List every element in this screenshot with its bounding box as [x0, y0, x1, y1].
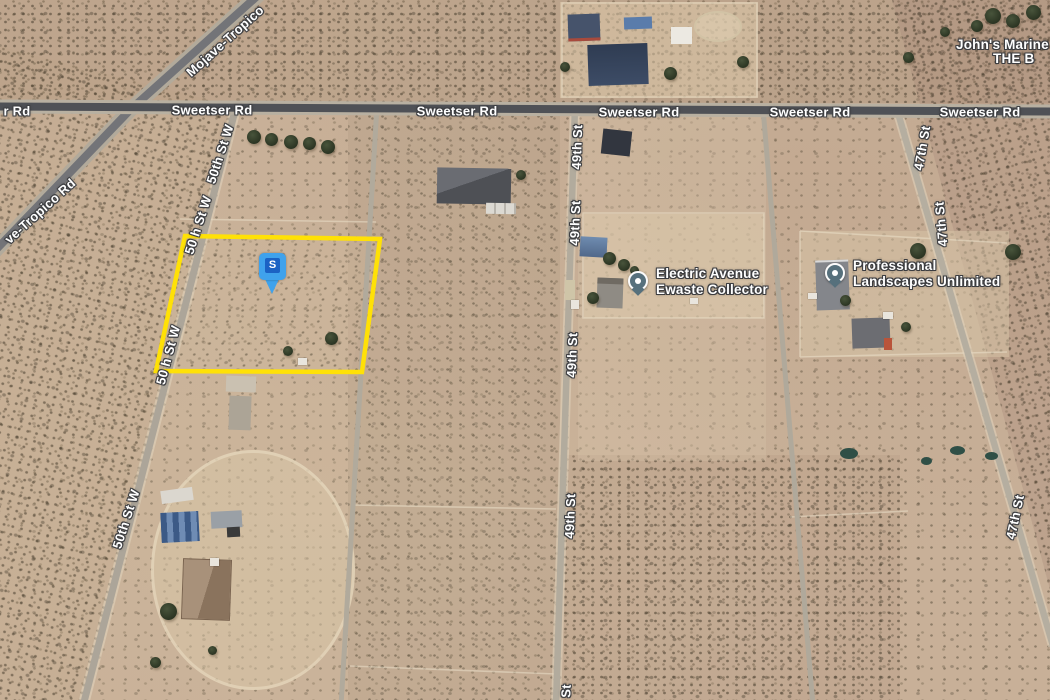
road-label-49th-2: 49th St: [567, 200, 584, 246]
tree: [325, 332, 338, 345]
building: [227, 527, 241, 538]
poi-label-ewaste-line2[interactable]: Ewaste Collector: [656, 282, 768, 297]
tree: [664, 67, 677, 80]
tree: [321, 140, 335, 154]
tree: [560, 62, 570, 72]
vehicle: [298, 358, 307, 365]
tree: [587, 292, 599, 304]
tree: [284, 135, 298, 149]
building: [226, 375, 257, 392]
tree: [603, 252, 616, 265]
road-label-sweetser-2: Sweetser Rd: [417, 104, 498, 119]
tree: [971, 20, 983, 32]
roads-layer: [0, 0, 1050, 700]
tree: [160, 603, 177, 620]
road-47th-st: [896, 106, 1050, 646]
road-label-49th-4: 49th St: [562, 493, 579, 539]
vehicle: [808, 293, 817, 299]
pond: [921, 457, 932, 465]
tree: [150, 657, 161, 668]
building: [437, 167, 512, 204]
building: [884, 338, 892, 350]
road-label-49th-1: 49th St: [569, 124, 586, 170]
pond: [840, 448, 858, 459]
tree: [903, 52, 914, 63]
building: [568, 13, 601, 41]
building: [160, 511, 200, 543]
tree: [985, 8, 1001, 24]
building: [671, 27, 692, 44]
tree: [901, 322, 911, 332]
marker-letter: S: [265, 258, 280, 273]
marker-tail: [265, 279, 279, 294]
road-unnamed-2: [763, 108, 813, 700]
tree: [1006, 14, 1020, 28]
road-label-sweetser-cut: r Rd: [4, 104, 31, 119]
road-label-sweetser-5: Sweetser Rd: [940, 105, 1021, 120]
tree: [1005, 244, 1021, 260]
poi-label-marine-line2[interactable]: THE B: [993, 51, 1035, 66]
tree: [1026, 5, 1041, 20]
building: [228, 396, 251, 431]
vehicle: [210, 558, 219, 566]
vehicle: [690, 298, 698, 304]
road-label-sweetser-4: Sweetser Rd: [770, 105, 851, 120]
tree: [618, 259, 630, 271]
pond: [985, 452, 998, 460]
tree: [265, 133, 278, 146]
building: [587, 43, 648, 86]
poi-label-landscapes-line1[interactable]: Professional: [853, 258, 936, 273]
building: [601, 129, 632, 157]
building: [181, 558, 232, 621]
road-label-sweetser-1: Sweetser Rd: [172, 103, 253, 118]
building: [596, 278, 623, 309]
tree: [247, 130, 261, 144]
tree: [516, 170, 526, 180]
building: [694, 11, 742, 42]
pond: [950, 446, 965, 455]
road-unnamed-1: [341, 106, 377, 700]
vehicle: [571, 300, 579, 309]
tree: [910, 243, 926, 259]
tree: [283, 346, 293, 356]
building: [565, 280, 575, 300]
tree: [303, 137, 316, 150]
map-canvas[interactable]: r Rd Sweetser Rd Sweetser Rd Sweetser Rd…: [0, 0, 1050, 700]
tree: [840, 295, 851, 306]
tree: [940, 27, 950, 37]
building: [624, 17, 652, 30]
vehicle: [883, 312, 893, 319]
poi-pin-landscapes[interactable]: [825, 263, 845, 283]
poi-label-marine-line1[interactable]: John's Marine: [956, 37, 1049, 52]
poi-pin-ewaste[interactable]: [628, 271, 648, 291]
road-label-49th-cut: St: [558, 684, 573, 698]
poi-label-landscapes-line2[interactable]: Landscapes Unlimited: [853, 274, 1000, 289]
road-sweetser: [0, 107, 1050, 112]
road-label-49th-3: 49th St: [564, 332, 581, 378]
tree: [737, 56, 749, 68]
poi-label-ewaste-line1[interactable]: Electric Avenue: [656, 266, 759, 281]
tree: [208, 646, 217, 655]
building: [486, 203, 516, 215]
road-49th-st: [556, 106, 575, 700]
road-label-sweetser-3: Sweetser Rd: [599, 105, 680, 120]
property-marker[interactable]: S: [259, 253, 287, 297]
